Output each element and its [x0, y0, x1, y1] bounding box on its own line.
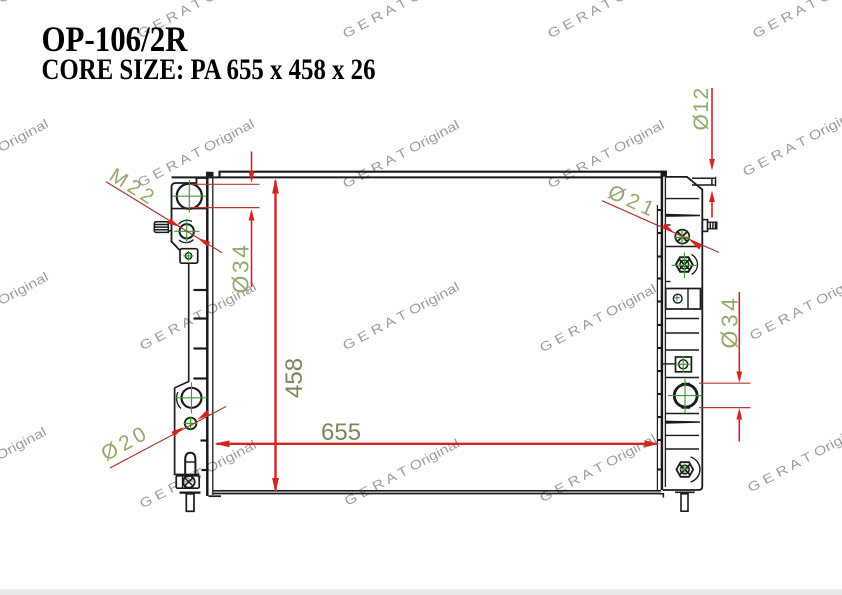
svg-text:G E R A T Original: G E R A T Original: [747, 269, 842, 343]
svg-text:G E R A T Original: G E R A T Original: [0, 424, 49, 498]
svg-text:G E R A T Original: G E R A T Original: [340, 0, 462, 41]
svg-text:G E R A T Original: G E R A T Original: [342, 435, 462, 508]
svg-text:Ø21: Ø21: [604, 181, 661, 223]
svg-text:G E R A T Original: G E R A T Original: [537, 281, 659, 355]
svg-text:G E R A T Original: G E R A T Original: [750, 0, 842, 41]
svg-text:Ø34: Ø34: [228, 243, 254, 294]
svg-text:655: 655: [321, 419, 361, 446]
svg-text:G E R A T Original: G E R A T Original: [545, 0, 667, 41]
svg-text:G E R A T Original: G E R A T Original: [0, 269, 51, 343]
svg-text:Ø12: Ø12: [690, 86, 713, 130]
svg-text:458: 458: [281, 358, 308, 398]
svg-text:Ø20: Ø20: [97, 421, 153, 466]
svg-text:G E R A T Original: G E R A T Original: [745, 421, 842, 495]
svg-text:CORE SIZE: PA 655 x 458 x 26: CORE SIZE: PA 655 x 458 x 26: [42, 53, 376, 86]
svg-text:Ø34: Ø34: [717, 295, 743, 349]
svg-text:G E R A T Original: G E R A T Original: [340, 117, 462, 191]
svg-text:G E R A T Original: G E R A T Original: [340, 279, 462, 353]
svg-text:G E R A T Original: G E R A T Original: [740, 105, 842, 179]
svg-text:G E R A T Original: G E R A T Original: [0, 116, 51, 190]
svg-text:G E R A T Original: G E R A T Original: [545, 117, 667, 191]
